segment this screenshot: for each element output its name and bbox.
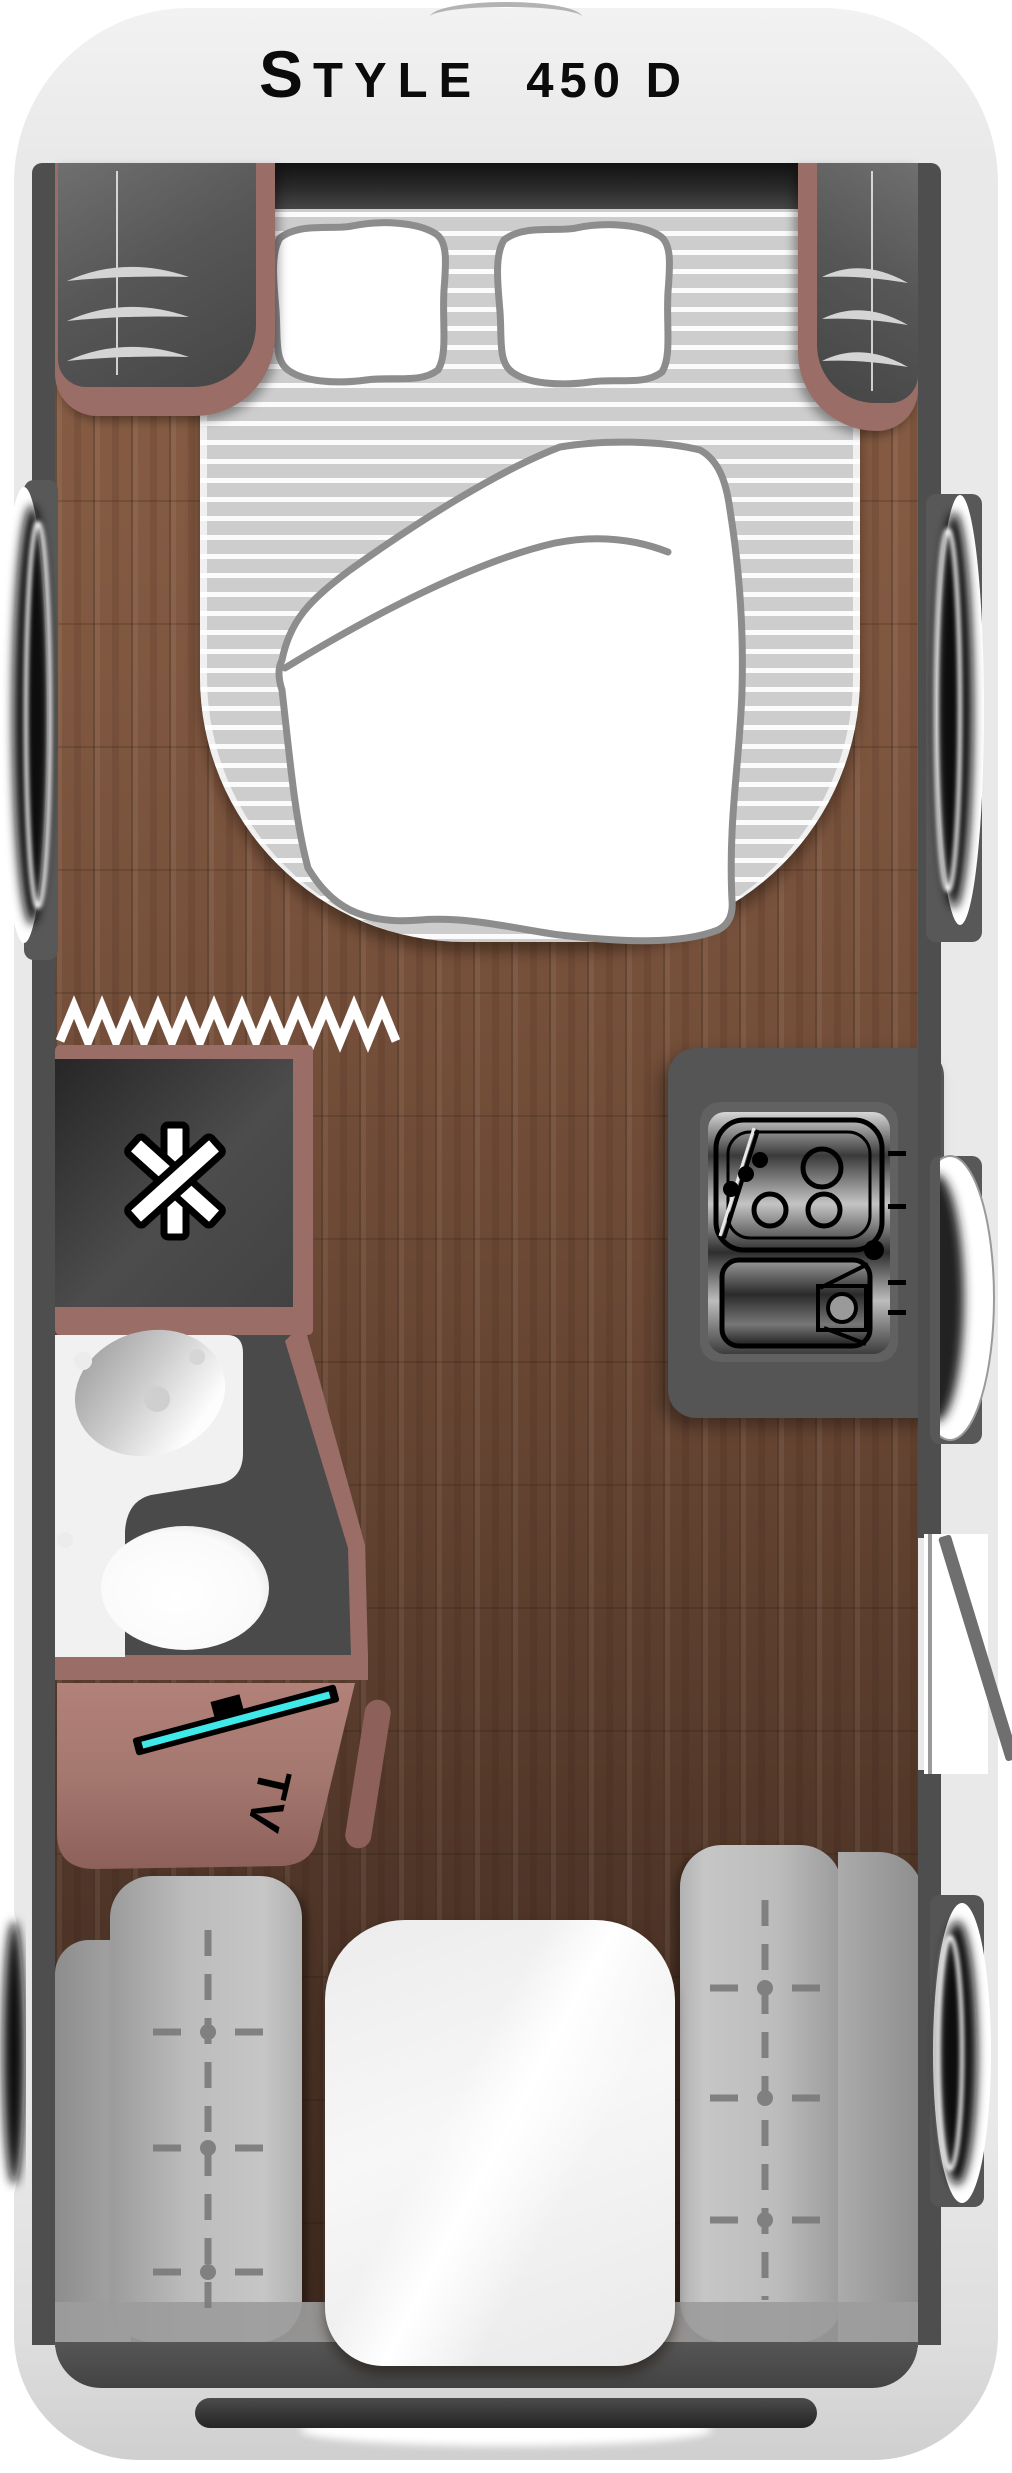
brand-initial: S <box>259 36 313 112</box>
toilet <box>101 1526 269 1650</box>
page-title: STYLE450 D <box>0 36 1012 112</box>
wardrobe-left-shelf-icons <box>55 163 275 416</box>
wheel-front-right <box>926 480 1012 950</box>
counter-dot-1 <box>74 1352 92 1370</box>
brand-name: TYLE <box>313 53 482 109</box>
stitch-cross <box>710 1980 820 2228</box>
wardrobe-right-shelf-icons <box>798 163 918 431</box>
wardrobe-front-left <box>55 163 275 416</box>
rear-bumper <box>195 2398 817 2428</box>
wheel-rear-right <box>930 1895 1012 2215</box>
faucet-knob <box>828 1294 856 1322</box>
bench-stitch-markers <box>55 1840 918 2340</box>
faucet-base-dot <box>864 1240 884 1260</box>
tow-hitch-arc <box>430 2 582 32</box>
counter-dot-3 <box>57 1532 73 1548</box>
caravan-floorplan: STYLE450 D <box>0 0 1012 2473</box>
counter-dot-2 <box>189 1349 205 1365</box>
washroom-trim-bottom <box>55 1655 368 1680</box>
washroom <box>55 1335 385 1680</box>
wheel-rear-left <box>0 1895 40 2215</box>
entry-door-frame <box>928 1534 932 1774</box>
kitchen-unit <box>660 1040 960 1425</box>
shower-cubicle <box>55 1045 325 1335</box>
pillow-left <box>274 223 446 382</box>
bedding-graphics <box>200 198 860 958</box>
basin-drain <box>144 1386 170 1412</box>
wheel-front-left <box>0 470 60 970</box>
duvet <box>279 442 742 941</box>
wardrobe-front-right <box>798 163 918 431</box>
pillow-right <box>498 225 670 384</box>
side-fairing-right <box>930 1150 1012 1450</box>
model-number: 450 D <box>526 53 687 109</box>
